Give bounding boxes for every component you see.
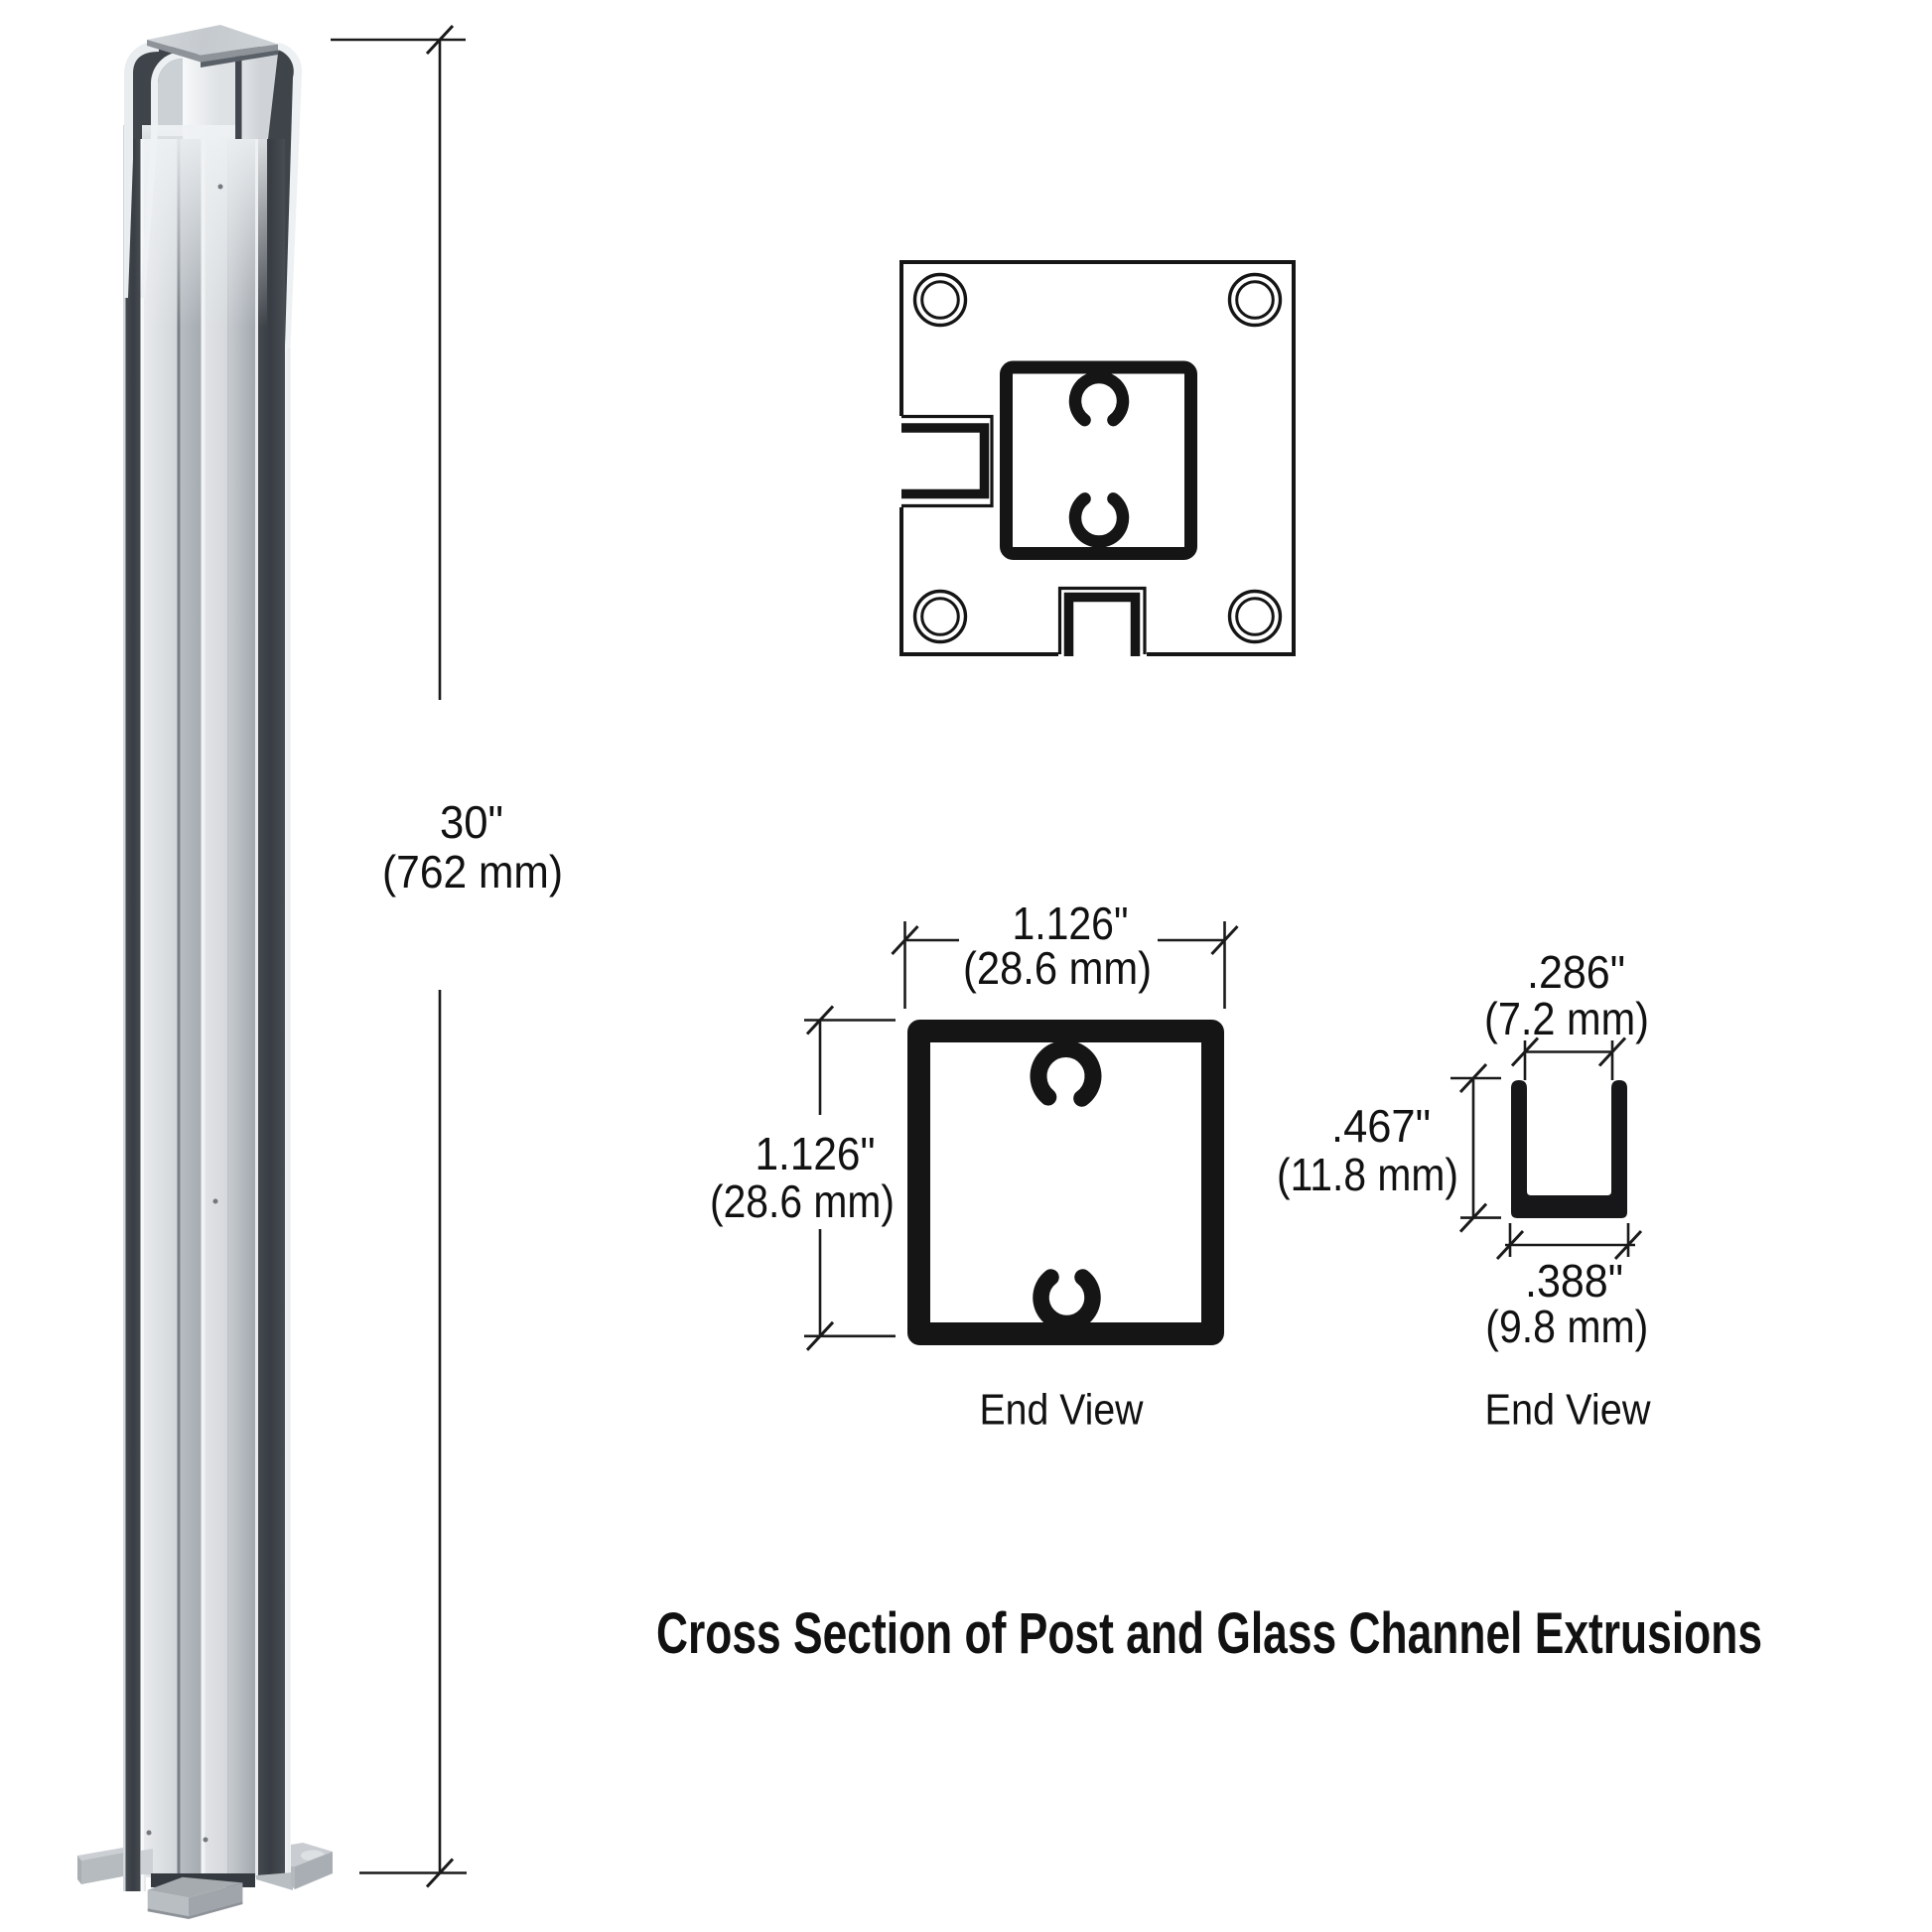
svg-text:.286": .286" [1527, 946, 1625, 998]
svg-text:(9.8 mm): (9.8 mm) [1485, 1301, 1648, 1352]
svg-text:(28.6 mm): (28.6 mm) [963, 942, 1152, 994]
svg-text:(11.8 mm): (11.8 mm) [1277, 1149, 1458, 1200]
svg-text:End View: End View [980, 1386, 1144, 1435]
svg-text:1.126": 1.126" [756, 1128, 876, 1179]
svg-text:(762 mm): (762 mm) [382, 846, 563, 897]
svg-text:End View: End View [1485, 1386, 1651, 1435]
svg-text:.467": .467" [1331, 1100, 1431, 1152]
svg-text:30": 30" [440, 796, 503, 848]
svg-text:(28.6 mm): (28.6 mm) [710, 1175, 895, 1227]
svg-text:(7.2 mm): (7.2 mm) [1484, 993, 1649, 1044]
svg-text:.388": .388" [1525, 1255, 1623, 1307]
svg-text:Cross Section of Post and Glas: Cross Section of Post and Glass Channel … [656, 1601, 1762, 1666]
